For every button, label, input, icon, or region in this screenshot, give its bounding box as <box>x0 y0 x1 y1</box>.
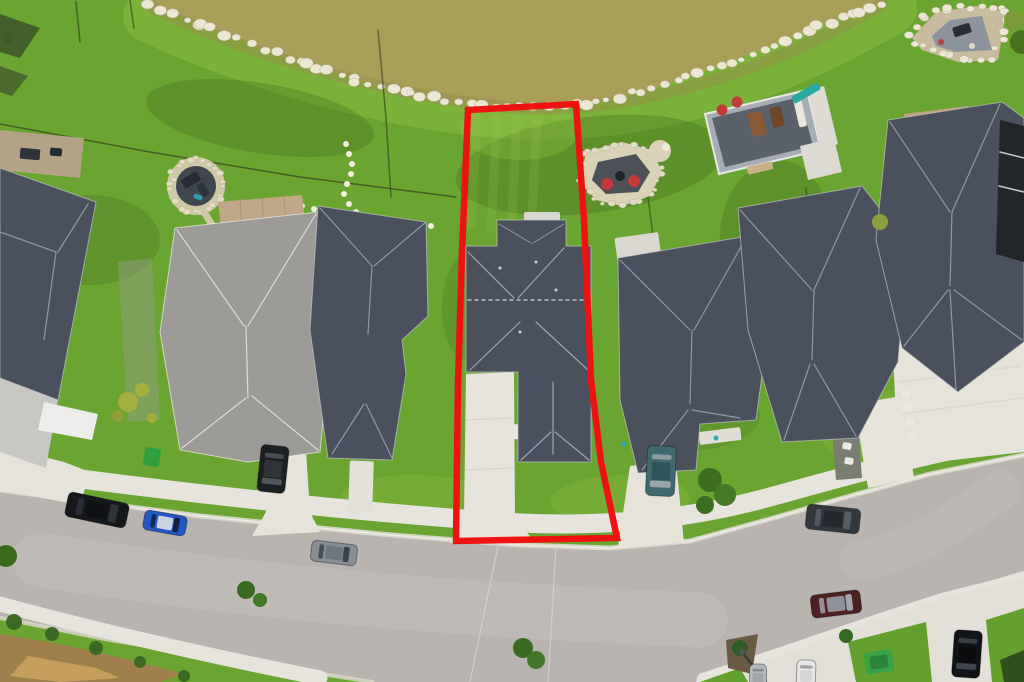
red-chair <box>732 97 743 108</box>
red-chair <box>628 175 640 187</box>
sandbox-inner <box>869 654 889 669</box>
house-roof-b-light <box>160 212 335 462</box>
suv-black <box>951 630 982 679</box>
patio-furniture <box>20 148 41 161</box>
white-chair <box>969 43 975 49</box>
shrub <box>839 629 853 643</box>
aerial-photo-scene <box>0 0 1024 682</box>
lamp-base <box>739 649 745 655</box>
tree <box>237 581 255 599</box>
tree <box>696 496 714 514</box>
shrub <box>112 410 124 422</box>
front-walk <box>348 461 374 514</box>
shrub <box>134 656 146 668</box>
shrub <box>147 413 157 423</box>
suv-teal <box>645 445 677 496</box>
paver <box>907 432 917 440</box>
shrub <box>118 392 138 412</box>
boulder <box>662 143 670 151</box>
shrub <box>45 627 59 641</box>
tree <box>253 593 267 607</box>
car-white <box>796 660 816 682</box>
stone-circle <box>649 140 671 162</box>
patio-furniture <box>50 147 63 156</box>
tree <box>527 651 545 669</box>
aerial-photo <box>0 0 1024 682</box>
sedan-black <box>257 444 290 494</box>
shrub <box>2 32 14 44</box>
fire-pit <box>615 171 625 181</box>
deck <box>0 130 84 178</box>
paver <box>901 390 911 398</box>
shrub <box>89 641 103 655</box>
suv-darkgray <box>805 504 861 535</box>
red-item <box>938 39 944 45</box>
shrub <box>178 670 190 682</box>
garbage-bin-green <box>143 447 161 467</box>
paver <box>903 404 913 412</box>
utility-marker <box>622 442 627 447</box>
shrub <box>135 383 149 397</box>
paver <box>905 418 915 426</box>
utility-marker <box>714 436 719 441</box>
red-chair <box>601 178 613 190</box>
shrub <box>872 214 888 230</box>
red-chair <box>717 105 728 116</box>
car-silver <box>750 664 767 682</box>
shrub <box>6 614 22 630</box>
tree <box>714 484 736 506</box>
tree <box>1004 10 1024 30</box>
